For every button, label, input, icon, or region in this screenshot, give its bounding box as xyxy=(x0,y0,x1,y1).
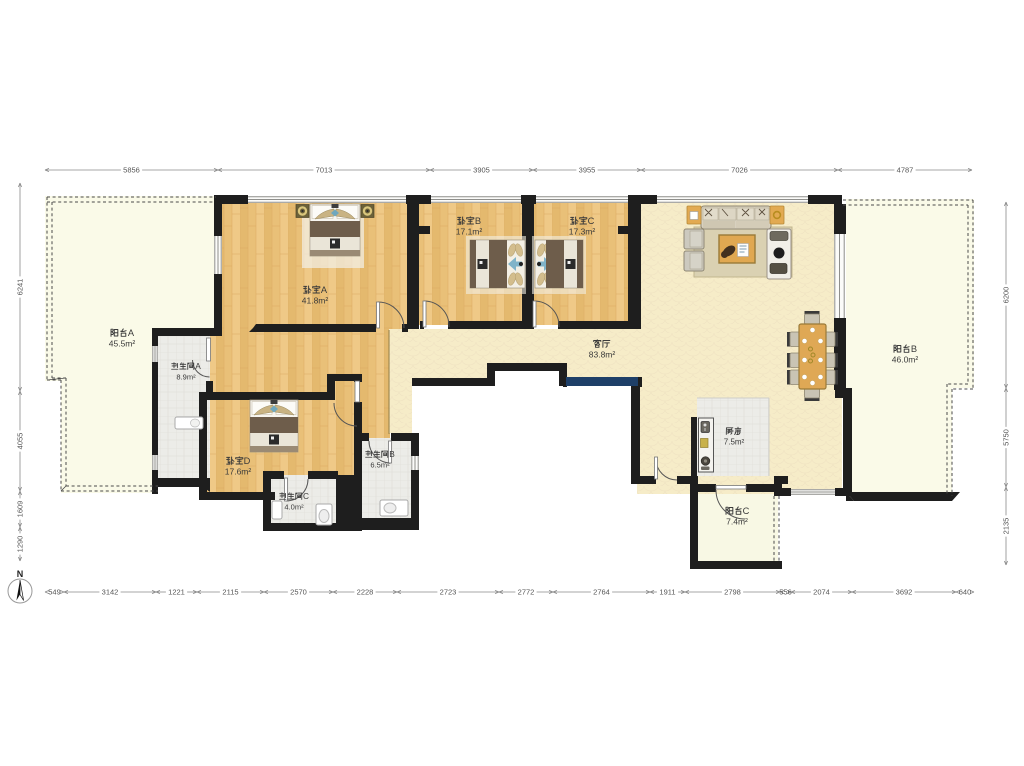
svg-text:8.9m²: 8.9m² xyxy=(176,373,196,382)
svg-text:1609: 1609 xyxy=(16,501,25,518)
svg-text:3142: 3142 xyxy=(102,588,119,597)
svg-text:2798: 2798 xyxy=(724,588,741,597)
svg-text:2228: 2228 xyxy=(357,588,374,597)
svg-text:549: 549 xyxy=(48,588,61,597)
svg-text:1290: 1290 xyxy=(16,536,25,553)
svg-text:17.1m²: 17.1m² xyxy=(456,227,483,237)
svg-text:6241: 6241 xyxy=(16,279,25,296)
svg-text:3905: 3905 xyxy=(473,166,490,175)
svg-text:7013: 7013 xyxy=(316,166,333,175)
svg-text:B: B xyxy=(389,449,395,459)
svg-text:2135: 2135 xyxy=(1002,518,1011,535)
svg-text:A: A xyxy=(195,361,201,371)
svg-text:2074: 2074 xyxy=(813,588,830,597)
svg-text:5856: 5856 xyxy=(123,166,140,175)
svg-text:D: D xyxy=(244,456,251,466)
svg-text:45.5m²: 45.5m² xyxy=(109,339,136,349)
svg-text:41.8m²: 41.8m² xyxy=(302,296,329,306)
svg-text:6.5m²: 6.5m² xyxy=(370,461,390,470)
svg-text:7026: 7026 xyxy=(731,166,748,175)
svg-text:4055: 4055 xyxy=(16,433,25,450)
svg-text:46.0m²: 46.0m² xyxy=(892,355,919,365)
svg-text:640: 640 xyxy=(959,588,972,597)
svg-text:2772: 2772 xyxy=(518,588,535,597)
svg-text:4.0m²: 4.0m² xyxy=(284,503,304,512)
svg-text:17.3m²: 17.3m² xyxy=(569,227,596,237)
svg-text:C: C xyxy=(588,216,595,226)
svg-text:3955: 3955 xyxy=(579,166,596,175)
svg-text:83.8m²: 83.8m² xyxy=(589,350,616,360)
svg-text:C: C xyxy=(743,506,750,516)
svg-text:6200: 6200 xyxy=(1002,287,1011,304)
svg-text:A: A xyxy=(321,285,328,295)
svg-text:2723: 2723 xyxy=(440,588,457,597)
svg-text:N: N xyxy=(17,569,24,579)
svg-text:2115: 2115 xyxy=(222,588,238,597)
svg-text:C: C xyxy=(303,491,309,501)
svg-text:17.6m²: 17.6m² xyxy=(225,467,252,477)
svg-text:B: B xyxy=(911,344,917,354)
svg-text:B: B xyxy=(475,216,481,226)
svg-text:7.5m²: 7.5m² xyxy=(724,438,745,447)
svg-text:5750: 5750 xyxy=(1002,429,1011,446)
svg-text:2570: 2570 xyxy=(290,588,307,597)
svg-text:2764: 2764 xyxy=(593,588,610,597)
svg-text:3692: 3692 xyxy=(896,588,913,597)
svg-text:1911: 1911 xyxy=(659,588,675,597)
svg-text:4787: 4787 xyxy=(897,166,914,175)
svg-text:1221: 1221 xyxy=(168,588,185,597)
svg-text:556: 556 xyxy=(779,588,792,597)
svg-text:A: A xyxy=(128,328,135,338)
